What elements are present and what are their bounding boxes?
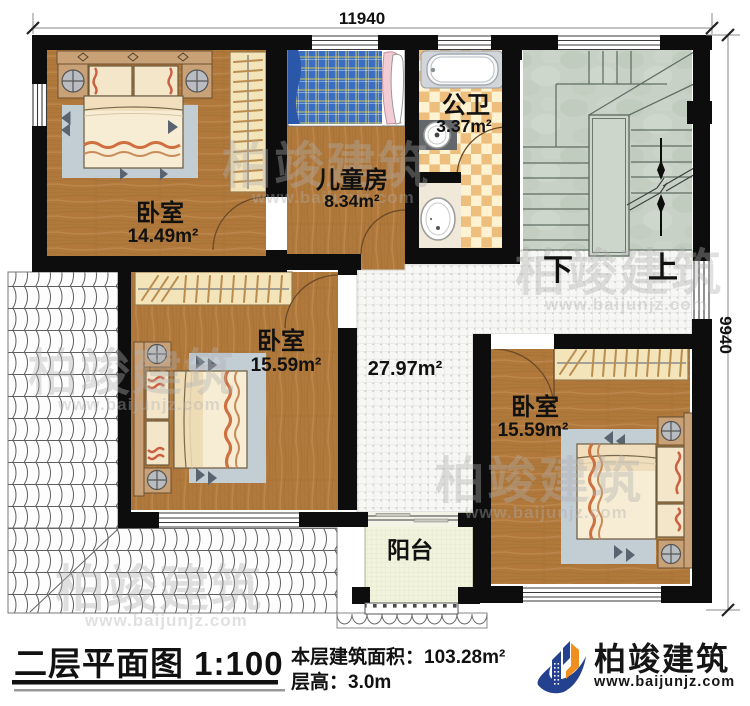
svg-text:上: 上 bbox=[648, 252, 678, 285]
svg-text:11940: 11940 bbox=[339, 9, 385, 28]
svg-text:27.97m²: 27.97m² bbox=[368, 358, 443, 380]
svg-text:下: 下 bbox=[543, 254, 573, 287]
svg-text:www.baijunjz.com: www.baijunjz.com bbox=[593, 674, 735, 690]
svg-text:柏竣建筑: 柏竣建筑 bbox=[435, 453, 643, 509]
svg-text:阳台: 阳台 bbox=[387, 537, 433, 563]
svg-text:8.34m²: 8.34m² bbox=[324, 191, 380, 211]
svg-text:层高：3.0m: 层高：3.0m bbox=[291, 670, 391, 693]
svg-text:儿童房: 儿童房 bbox=[316, 166, 388, 194]
svg-text:卧室: 卧室 bbox=[511, 393, 559, 421]
svg-text:www.baijunjz.com: www.baijunjz.com bbox=[464, 503, 628, 522]
svg-text:www.baijunjz.com: www.baijunjz.com bbox=[84, 611, 248, 630]
svg-text:www.baijunjz.com: www.baijunjz.com bbox=[544, 295, 708, 314]
svg-text:14.49m²: 14.49m² bbox=[128, 226, 199, 247]
svg-text:柏竣建筑: 柏竣建筑 bbox=[28, 345, 236, 401]
svg-text:卧室: 卧室 bbox=[136, 199, 184, 227]
svg-text:本层建筑面积：103.28m²: 本层建筑面积：103.28m² bbox=[291, 645, 505, 668]
svg-text:9940: 9940 bbox=[716, 316, 735, 354]
svg-text:卧室: 卧室 bbox=[257, 327, 305, 355]
svg-text:www.baijunjz.com: www.baijunjz.com bbox=[57, 395, 221, 414]
svg-text:公卫: 公卫 bbox=[442, 92, 490, 119]
svg-text:二层平面图 1:100: 二层平面图 1:100 bbox=[14, 645, 284, 682]
svg-text:3.37m²: 3.37m² bbox=[436, 116, 492, 136]
svg-text:柏竣建筑: 柏竣建筑 bbox=[55, 561, 263, 617]
svg-text:15.59m²: 15.59m² bbox=[498, 420, 569, 441]
svg-text:柏竣建筑: 柏竣建筑 bbox=[594, 641, 730, 677]
svg-text:15.59m²: 15.59m² bbox=[251, 355, 322, 376]
